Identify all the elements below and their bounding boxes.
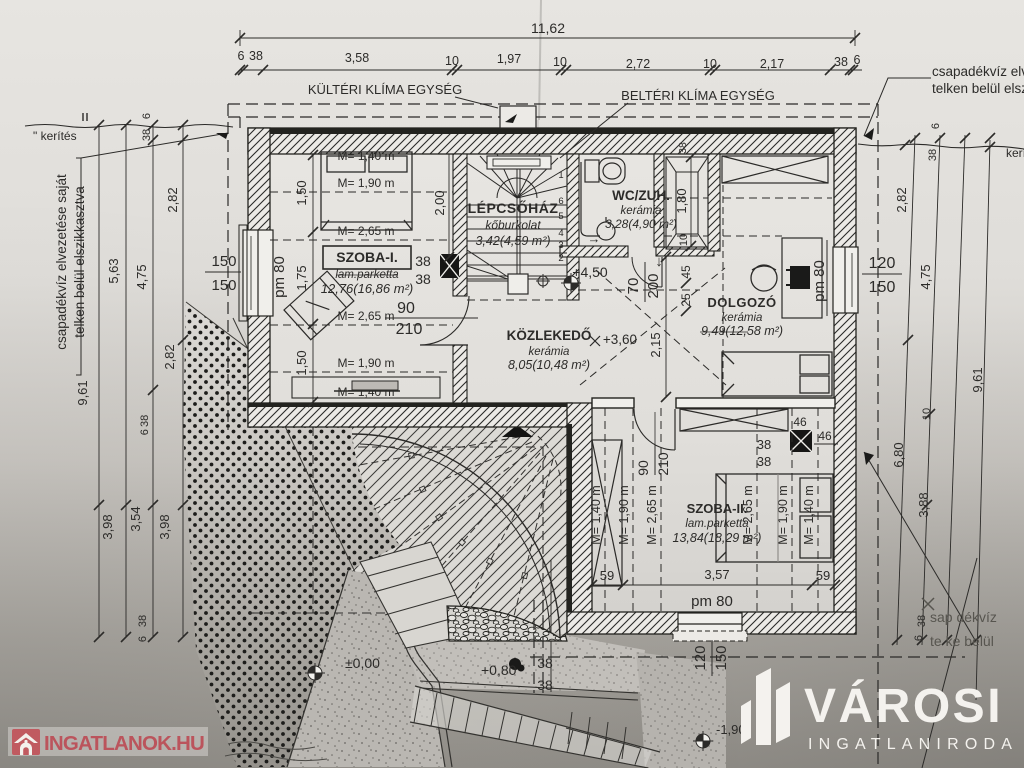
svg-text:38: 38	[415, 253, 431, 269]
svg-text:±0,00: ±0,00	[345, 655, 380, 671]
svg-text:8,05(10,48 m²): 8,05(10,48 m²)	[508, 358, 590, 372]
svg-text:38: 38	[927, 149, 939, 161]
svg-text:200: 200	[645, 273, 662, 298]
svg-text:M= 1,90 m: M= 1,90 m	[617, 485, 631, 544]
svg-text:25: 25	[679, 293, 693, 307]
svg-text:kerámia: kerámia	[722, 312, 763, 324]
svg-text:9,49(12,58 m²): 9,49(12,58 m²)	[701, 324, 783, 338]
svg-text:5,63: 5,63	[106, 258, 121, 283]
svg-text:2,17: 2,17	[760, 57, 784, 71]
svg-text:38: 38	[677, 142, 689, 154]
svg-text:59: 59	[600, 568, 614, 583]
svg-text:38: 38	[757, 454, 771, 469]
svg-text:4,75: 4,75	[134, 264, 149, 289]
svg-text:10: 10	[703, 57, 717, 71]
svg-text:6: 6	[930, 123, 942, 129]
svg-text:3,42(4,59 m²): 3,42(4,59 m²)	[475, 234, 550, 248]
svg-text:150: 150	[211, 253, 236, 270]
svg-text:45: 45	[679, 265, 693, 279]
svg-text:10: 10	[445, 54, 459, 68]
svg-text:telken belül elszikkasztva: telken belül elszikkasztva	[72, 186, 87, 338]
svg-text:1,50: 1,50	[294, 180, 309, 205]
svg-text:10: 10	[553, 55, 567, 69]
svg-text:46: 46	[818, 429, 832, 443]
svg-text:120: 120	[869, 255, 896, 272]
svg-text:BELTÉRI KLÍMA EGYSÉG: BELTÉRI KLÍMA EGYSÉG	[621, 88, 775, 103]
svg-text:6: 6	[913, 635, 925, 641]
svg-text:pm 80: pm 80	[691, 593, 733, 610]
svg-text:lam.parketta: lam.parketta	[685, 518, 748, 530]
svg-text:210: 210	[396, 321, 423, 338]
svg-text:3,98: 3,98	[100, 514, 115, 539]
svg-text:6 38: 6 38	[139, 415, 151, 436]
svg-text:3,54: 3,54	[128, 506, 143, 531]
svg-text:+0,80: +0,80	[481, 662, 517, 678]
svg-text:telken belül elszik: telken belül elszik	[932, 81, 1024, 96]
svg-text:kőburkolat: kőburkolat	[485, 218, 541, 232]
svg-text:2,82: 2,82	[165, 187, 180, 212]
svg-text:11,62: 11,62	[531, 20, 565, 36]
svg-text:70: 70	[625, 278, 642, 295]
svg-text:150: 150	[211, 277, 236, 294]
svg-text:M= 1,40 m: M= 1,40 m	[337, 149, 394, 163]
svg-text:2: 2	[558, 253, 563, 264]
svg-text:te ke belül: te ke belül	[930, 633, 994, 649]
svg-text:3,88: 3,88	[916, 492, 931, 517]
svg-text:38: 38	[137, 615, 149, 627]
svg-text:INGATLANIRODA: INGATLANIRODA	[808, 736, 1018, 753]
svg-text:9,61: 9,61	[970, 367, 985, 392]
svg-text:38: 38	[916, 615, 928, 627]
svg-text:210: 210	[655, 452, 671, 476]
svg-text:3: 3	[558, 240, 563, 251]
svg-text:3,58: 3,58	[345, 51, 369, 65]
svg-text:1,75: 1,75	[294, 265, 309, 290]
svg-text:+4,50: +4,50	[572, 264, 608, 280]
svg-text:DOLGOZÓ: DOLGOZÓ	[707, 295, 776, 310]
svg-text:3,57: 3,57	[704, 567, 729, 582]
svg-text:1,97: 1,97	[497, 52, 521, 66]
svg-text:38: 38	[834, 55, 848, 69]
svg-text:150: 150	[713, 645, 730, 670]
svg-text:6: 6	[137, 636, 149, 642]
svg-text:6: 6	[141, 113, 153, 119]
svg-text:13,84(18,29 m²): 13,84(18,29 m²)	[673, 531, 762, 545]
svg-text:VÁROSI: VÁROSI	[804, 679, 1003, 733]
svg-text:38: 38	[757, 437, 771, 452]
svg-text:SZOBA-II.: SZOBA-II.	[687, 501, 748, 516]
svg-text:1: 1	[558, 170, 563, 181]
svg-text:2,82: 2,82	[894, 187, 909, 212]
svg-text:" kerítés: " kerítés	[33, 129, 77, 143]
svg-text:SZOBA-I.: SZOBA-I.	[336, 249, 397, 265]
svg-text:M= 2,65 m: M= 2,65 m	[337, 224, 394, 238]
svg-text:38: 38	[141, 129, 153, 141]
svg-text:2,72: 2,72	[626, 57, 650, 71]
svg-text:38: 38	[249, 49, 263, 63]
svg-text:6: 6	[558, 196, 563, 207]
svg-text:KÖZLEKEDŐ: KÖZLEKEDŐ	[507, 328, 592, 343]
svg-text:M= 1,90 m: M= 1,90 m	[337, 356, 394, 370]
svg-text:6: 6	[854, 53, 861, 67]
svg-text:2,15: 2,15	[648, 332, 663, 357]
svg-text:kerí: kerí	[1006, 146, 1024, 160]
svg-text:4: 4	[558, 228, 563, 239]
svg-text:5: 5	[558, 211, 563, 222]
svg-text:M= 1,40 m: M= 1,40 m	[589, 485, 603, 544]
svg-text:LÉPCSŐHÁZ: LÉPCSŐHÁZ	[468, 199, 559, 216]
svg-text:9,61: 9,61	[75, 380, 90, 405]
svg-text:M= 2,65 m: M= 2,65 m	[337, 309, 394, 323]
svg-text:csapadékvíz elve: csapadékvíz elve	[932, 64, 1024, 79]
svg-text:+3,60: +3,60	[603, 332, 637, 347]
svg-text:M= 1,90 m: M= 1,90 m	[337, 176, 394, 190]
svg-text:38: 38	[537, 677, 553, 693]
svg-text:6,80: 6,80	[891, 442, 906, 467]
svg-text:INGATLANOK.HU: INGATLANOK.HU	[44, 732, 204, 755]
svg-text:2,82: 2,82	[162, 344, 177, 369]
svg-text:120: 120	[692, 645, 709, 670]
svg-text:38: 38	[415, 271, 431, 287]
svg-text:1,50: 1,50	[294, 350, 309, 375]
svg-text:WC/ZUH.: WC/ZUH.	[612, 188, 670, 203]
svg-text:59: 59	[816, 568, 830, 583]
svg-text:pm 80: pm 80	[811, 260, 828, 302]
svg-text:3,98: 3,98	[157, 514, 172, 539]
svg-text:6: 6	[238, 49, 245, 63]
svg-text:kerámia: kerámia	[621, 205, 662, 217]
svg-text:90: 90	[635, 460, 651, 476]
svg-text:csapadékvíz elvezetése saját: csapadékvíz elvezetése saját	[54, 174, 69, 350]
svg-text:sap dékvíz: sap dékvíz	[930, 609, 997, 625]
svg-text:M= 2,65 m: M= 2,65 m	[645, 485, 659, 544]
svg-text:90: 90	[397, 300, 415, 317]
svg-text:10: 10	[921, 408, 933, 420]
svg-text:150: 150	[869, 279, 896, 296]
svg-text:46: 46	[793, 415, 807, 429]
svg-text:kerámia: kerámia	[529, 346, 570, 358]
svg-text:M= 1,40 m: M= 1,40 m	[802, 485, 816, 544]
svg-text:pm 80: pm 80	[271, 256, 288, 298]
svg-text:→: →	[588, 231, 601, 246]
svg-text:38: 38	[537, 655, 553, 671]
svg-text:KÜLTÉRI KLÍMA EGYSÉG: KÜLTÉRI KLÍMA EGYSÉG	[308, 82, 462, 97]
svg-text:2,00: 2,00	[432, 190, 447, 215]
svg-text:4,75: 4,75	[918, 264, 933, 289]
